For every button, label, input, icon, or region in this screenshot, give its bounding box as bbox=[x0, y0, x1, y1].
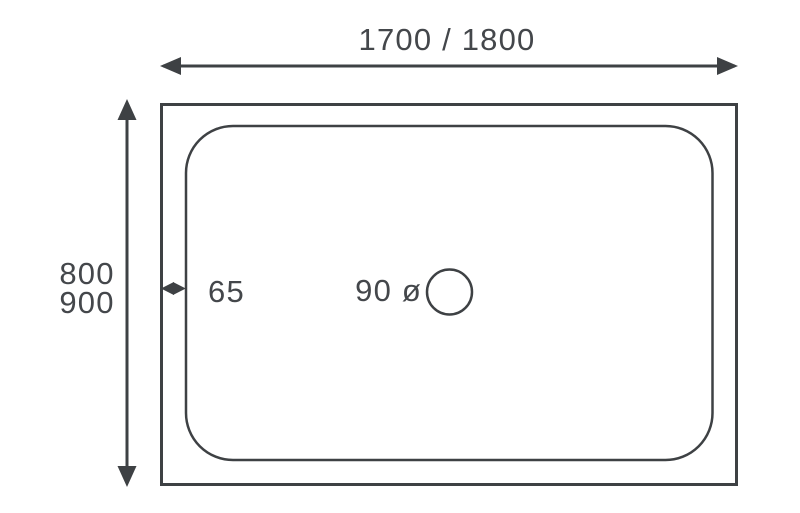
drain: 90 ø bbox=[355, 270, 472, 315]
tray-inner-basin bbox=[186, 126, 713, 460]
arrowhead-up-icon bbox=[118, 99, 137, 120]
depth-dimension: 800 900 bbox=[59, 99, 136, 487]
edge-lip-dimension: 65 bbox=[161, 274, 245, 309]
edge-lip-dimension-label: 65 bbox=[208, 274, 245, 309]
arrowhead-down-icon bbox=[118, 466, 137, 487]
drain-diameter-label: 90 ø bbox=[355, 273, 422, 308]
tray-outer-edge bbox=[162, 105, 737, 485]
width-dimension: 1700 / 1800 bbox=[160, 22, 738, 75]
small-arrowhead-right-icon bbox=[173, 282, 186, 295]
shower-tray-dimension-diagram: 1700 / 1800 800 900 65 90 ø bbox=[0, 0, 800, 513]
depth-dimension-label-line2: 900 bbox=[59, 285, 114, 320]
drain-hole bbox=[427, 270, 472, 315]
arrowhead-right-icon bbox=[717, 57, 738, 75]
width-dimension-label: 1700 / 1800 bbox=[359, 22, 536, 57]
arrowhead-left-icon bbox=[160, 57, 181, 75]
diagram-canvas: 1700 / 1800 800 900 65 90 ø bbox=[0, 0, 800, 513]
